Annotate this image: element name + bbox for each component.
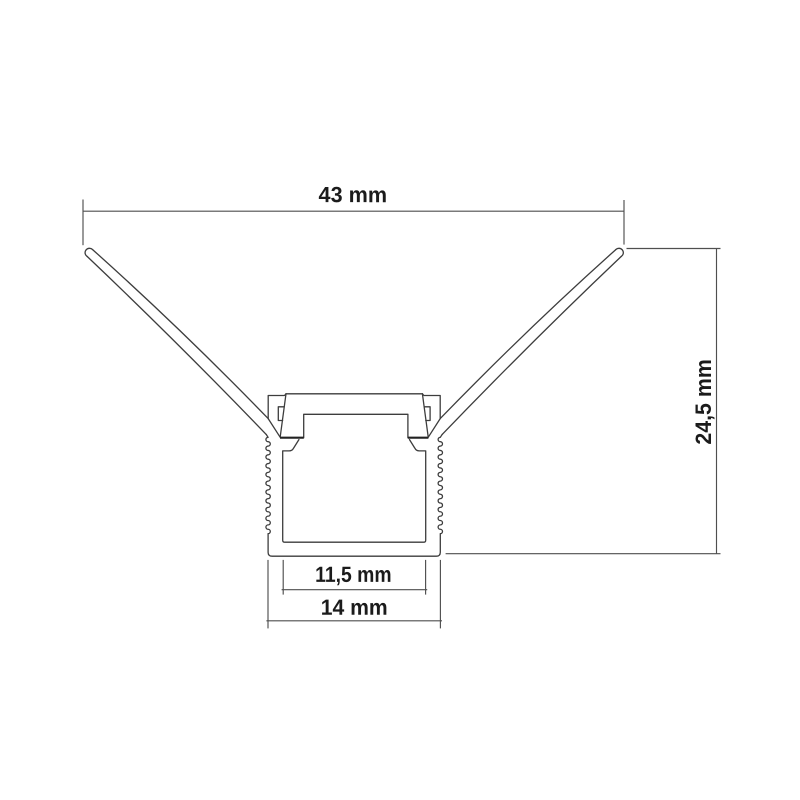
svg-text:14 mm: 14 mm — [321, 595, 388, 620]
svg-text:24,5 mm: 24,5 mm — [691, 359, 716, 445]
svg-text:43 mm: 43 mm — [319, 182, 388, 207]
svg-text:11,5 mm: 11,5 mm — [315, 562, 392, 587]
